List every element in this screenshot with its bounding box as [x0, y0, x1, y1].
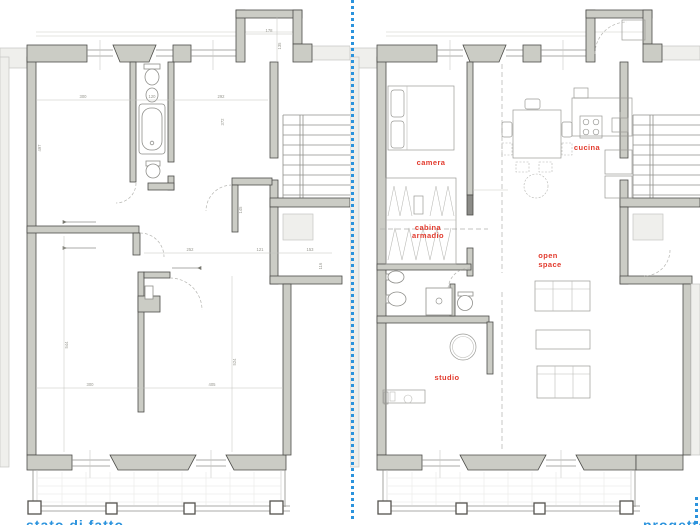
coffee-table-icon [536, 330, 590, 349]
dim-label: 300 [80, 94, 88, 99]
dim-label: 544 [64, 341, 69, 349]
bidet-icon [386, 271, 404, 283]
dim-label: 497 [37, 144, 42, 152]
sofa-icon [537, 366, 590, 398]
desk-icon [383, 390, 425, 404]
room-label-open: open [538, 251, 558, 260]
radiator-icon [145, 286, 153, 299]
door-arc [206, 185, 232, 211]
dim-label: 372 [220, 118, 225, 126]
sofa-icon [535, 281, 590, 311]
project-plan-interior: camera cucina cabina armadio open space … [377, 20, 700, 470]
bathtub-icon [139, 104, 165, 154]
room-label-camera: camera [417, 158, 446, 167]
dim-label: 178 [266, 28, 274, 33]
dim-label: 292 [218, 94, 226, 99]
dim-label: 405 [209, 382, 217, 387]
dim-label: 135 [277, 42, 282, 50]
floor-plan-comparison: 300 120 292 497 372 178 135 145 252 121 … [0, 0, 700, 525]
door-arc [116, 183, 136, 203]
project-plan: camera cucina cabina armadio open space … [350, 0, 700, 525]
sink-icon [146, 161, 160, 178]
shower-icon [426, 288, 452, 315]
door-arc [140, 233, 164, 257]
room-label-armadio: armadio [412, 231, 444, 240]
existing-plan: 300 120 292 497 372 178 135 145 252 121 … [0, 0, 350, 525]
dim-label: 121 [257, 247, 265, 252]
entry-cabinet-icon [622, 20, 645, 40]
door-arc [644, 250, 670, 276]
bed-icon [388, 86, 454, 150]
toilet-icon [386, 292, 406, 306]
dim-label: 524 [232, 358, 237, 366]
room-label-space: space [538, 260, 561, 269]
caption-left-clipped: stato di fatto [26, 517, 124, 525]
wardrobe-icon [386, 178, 456, 264]
dining-table-icon [502, 99, 572, 198]
studio-table-icon [450, 334, 476, 360]
caption-right-clipped: progetto [643, 517, 700, 525]
dim-label: 116 [318, 262, 323, 269]
dim-label: 145 [238, 206, 243, 214]
sink-icon [458, 292, 474, 311]
door-arc [170, 278, 202, 310]
dim-label: 300 [87, 382, 95, 387]
room-label-studio: studio [435, 373, 460, 382]
dim-label: 153 [307, 247, 315, 252]
dim-label: 252 [187, 247, 195, 252]
room-label-cucina: cucina [574, 143, 601, 152]
toilet-icon [144, 64, 160, 85]
dim-label: 120 [149, 94, 157, 99]
pocket-door [467, 195, 473, 215]
plan-divider-dotted-line [351, 0, 354, 519]
